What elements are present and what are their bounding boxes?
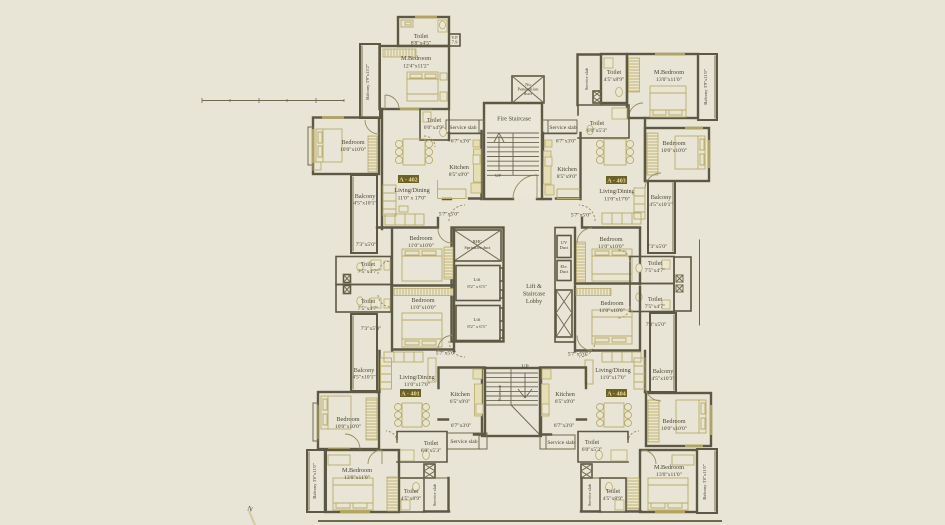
svg-text:Service slab: Service slab bbox=[547, 440, 574, 446]
svg-text:Balcony: Balcony bbox=[355, 193, 377, 200]
svg-text:Lift: Lift bbox=[474, 277, 482, 282]
svg-text:Bedroom: Bedroom bbox=[662, 418, 685, 425]
svg-text:6'7"x3'6": 6'7"x3'6" bbox=[451, 139, 472, 145]
svg-text:11'0"x10'0": 11'0"x10'0" bbox=[598, 244, 624, 250]
svg-text:6'7"x3'0": 6'7"x3'0" bbox=[554, 423, 575, 429]
svg-text:11'0"x10'0": 11'0"x10'0" bbox=[599, 308, 625, 314]
svg-text:Lift &: Lift & bbox=[526, 283, 542, 290]
svg-text:8'2" x 6'3": 8'2" x 6'3" bbox=[467, 284, 486, 289]
svg-text:Service slab: Service slab bbox=[549, 125, 576, 131]
svg-text:Bedroom: Bedroom bbox=[599, 236, 622, 243]
svg-text:Bedroom: Bedroom bbox=[411, 297, 434, 304]
svg-text:7'5"x4'7": 7'5"x4'7" bbox=[645, 304, 666, 310]
svg-text:Toilet: Toilet bbox=[590, 120, 605, 127]
svg-text:Toilet: Toilet bbox=[606, 488, 621, 495]
svg-text:Bedroom: Bedroom bbox=[409, 235, 432, 242]
svg-text:7'5"x4'7": 7'5"x4'7" bbox=[358, 269, 379, 275]
svg-text:11'0" x 17'0": 11'0" x 17'0" bbox=[398, 196, 427, 202]
svg-text:Toilet: Toilet bbox=[607, 69, 622, 76]
svg-text:10'0"x10'0": 10'0"x10'0" bbox=[661, 426, 687, 432]
svg-text:10'0"x10'0": 10'0"x10'0" bbox=[335, 424, 361, 430]
svg-text:Staircase: Staircase bbox=[497, 385, 502, 402]
svg-text:5'7"x5'0": 5'7"x5'0" bbox=[568, 352, 589, 358]
svg-text:Toilet: Toilet bbox=[424, 440, 439, 447]
svg-text:4'5"x10'1": 4'5"x10'1" bbox=[353, 201, 376, 207]
svg-text:Toilet: Toilet bbox=[361, 298, 376, 305]
svg-text:Toilet: Toilet bbox=[585, 439, 600, 446]
svg-text:Toilet: Toilet bbox=[427, 117, 442, 124]
svg-text:8'5"x9'0": 8'5"x9'0" bbox=[557, 174, 578, 180]
svg-text:Balcony: Balcony bbox=[651, 194, 673, 201]
svg-text:13'0"x11'0": 13'0"x11'0" bbox=[656, 77, 682, 83]
svg-text:7'5"x4'7": 7'5"x4'7" bbox=[645, 268, 666, 274]
svg-text:Toilet: Toilet bbox=[361, 261, 376, 268]
svg-text:6'7"x3'0": 6'7"x3'0" bbox=[556, 139, 577, 145]
svg-text:4'5"x10'1": 4'5"x10'1" bbox=[649, 202, 672, 208]
svg-text:6'7"x3'0": 6'7"x3'0" bbox=[451, 423, 472, 429]
svg-text:Lift: Lift bbox=[474, 317, 482, 322]
svg-text:4'5"x8'9": 4'5"x8'9" bbox=[603, 496, 624, 502]
svg-text:Balcony 3'9"x15'2": Balcony 3'9"x15'2" bbox=[365, 64, 370, 100]
svg-text:6'0"x4'9": 6'0"x4'9" bbox=[424, 125, 445, 131]
svg-text:Bedroom: Bedroom bbox=[336, 416, 359, 423]
svg-text:A - 402: A - 402 bbox=[399, 177, 418, 184]
svg-text:11'0"x17'0": 11'0"x17'0" bbox=[604, 197, 630, 203]
svg-text:Kitchen: Kitchen bbox=[450, 391, 470, 398]
svg-text:7'3"x5'0": 7'3"x5'0" bbox=[647, 244, 668, 250]
svg-text:Toilet: Toilet bbox=[414, 33, 429, 40]
svg-text:6'5"x9'0": 6'5"x9'0" bbox=[555, 399, 576, 405]
svg-text:4'5"x10'1": 4'5"x10'1" bbox=[352, 375, 375, 381]
svg-text:duct: duct bbox=[524, 91, 533, 96]
svg-text:M.Bedroom: M.Bedroom bbox=[654, 464, 684, 471]
svg-text:M.Bedroom: M.Bedroom bbox=[401, 55, 431, 62]
svg-text:Balcony 3'0"x11'0": Balcony 3'0"x11'0" bbox=[312, 463, 317, 499]
svg-text:4'5"x8'9": 4'5"x8'9" bbox=[604, 77, 625, 83]
svg-text:Lobby: Lobby bbox=[526, 298, 543, 305]
svg-text:6'0"x5'3": 6'0"x5'3" bbox=[421, 448, 442, 454]
svg-text:Service slab: Service slab bbox=[450, 439, 477, 445]
svg-text:Balcony 3'0"x11'0": Balcony 3'0"x11'0" bbox=[702, 464, 707, 500]
svg-text:M.Bedroom: M.Bedroom bbox=[654, 69, 684, 76]
svg-text:4'5"x8'9": 4'5"x8'9" bbox=[401, 496, 422, 502]
svg-text:Balcony: Balcony bbox=[653, 368, 675, 375]
svg-text:8'5"x9'0": 8'5"x9'0" bbox=[449, 172, 470, 178]
svg-text:Toilet: Toilet bbox=[648, 296, 663, 303]
svg-text:13'0"x11'0": 13'0"x11'0" bbox=[656, 472, 682, 478]
svg-text:Staircase: Staircase bbox=[523, 291, 546, 298]
svg-text:Duct: Duct bbox=[560, 269, 570, 274]
svg-text:7'3"x5'0": 7'3"x5'0" bbox=[646, 322, 667, 328]
svg-text:11'0"x17'0": 11'0"x17'0" bbox=[404, 382, 430, 388]
svg-text:A - 401: A - 401 bbox=[401, 391, 420, 398]
svg-text:M.Bedroom: M.Bedroom bbox=[342, 467, 372, 474]
svg-text:Balcony: Balcony bbox=[354, 367, 376, 374]
svg-text:A - 403: A - 403 bbox=[607, 178, 626, 185]
svg-text:Balcony 3'9"x11'0": Balcony 3'9"x11'0" bbox=[703, 69, 708, 105]
svg-text:11'0"x10'0": 11'0"x10'0" bbox=[408, 243, 434, 249]
svg-text:Kitchen: Kitchen bbox=[555, 391, 575, 398]
svg-text:7'3"x5'0": 7'3"x5'0" bbox=[361, 326, 382, 332]
svg-text:7.9: 7.9 bbox=[452, 40, 458, 45]
svg-text:Duct: Duct bbox=[560, 245, 570, 250]
svg-text:Kitchen: Kitchen bbox=[449, 164, 469, 171]
svg-text:Bedroom: Bedroom bbox=[600, 300, 623, 307]
svg-text:Kitchen: Kitchen bbox=[557, 166, 577, 173]
svg-text:6'0"x5'3": 6'0"x5'3" bbox=[582, 447, 603, 453]
svg-text:12'4"x11'2": 12'4"x11'2" bbox=[403, 64, 429, 70]
svg-text:UP: UP bbox=[521, 364, 528, 370]
svg-text:10'0"x10'0": 10'0"x10'0" bbox=[661, 148, 687, 154]
svg-text:Living/Dining: Living/Dining bbox=[394, 187, 429, 194]
svg-text:8'2" x 6'3": 8'2" x 6'3" bbox=[467, 324, 486, 329]
svg-text:Service slab: Service slab bbox=[449, 125, 476, 131]
svg-text:Service slab: Service slab bbox=[584, 67, 589, 90]
svg-text:Service slab: Service slab bbox=[432, 483, 437, 506]
svg-text:7'3"x5'0": 7'3"x5'0" bbox=[356, 242, 377, 248]
svg-text:Fire Staircase: Fire Staircase bbox=[497, 116, 531, 123]
svg-text:11'0"x17'0": 11'0"x17'0" bbox=[600, 375, 626, 381]
svg-text:7'5"x4'7": 7'5"x4'7" bbox=[358, 306, 379, 312]
svg-text:4'5"x10'3": 4'5"x10'3" bbox=[651, 376, 674, 382]
svg-text:Sprinkler duct: Sprinkler duct bbox=[464, 245, 491, 250]
svg-text:11'0"x10'0": 11'0"x10'0" bbox=[410, 305, 436, 311]
svg-text:Toilet: Toilet bbox=[648, 260, 663, 267]
svg-text:5'7"x5'0": 5'7"x5'0" bbox=[439, 212, 460, 218]
svg-text:Toilet: Toilet bbox=[404, 488, 419, 495]
svg-text:6'5"x9'0": 6'5"x9'0" bbox=[450, 399, 471, 405]
svg-text:Living/Dining: Living/Dining bbox=[399, 374, 434, 381]
svg-text:Bedroom: Bedroom bbox=[662, 140, 685, 147]
svg-text:A - 404: A - 404 bbox=[607, 391, 626, 398]
svg-text:6'0"x5'3": 6'0"x5'3" bbox=[587, 128, 608, 134]
svg-text:Bedroom: Bedroom bbox=[341, 139, 364, 146]
svg-text:Living/Dining: Living/Dining bbox=[595, 367, 630, 374]
svg-text:UP: UP bbox=[495, 173, 501, 178]
svg-text:10'0"x10'0": 10'0"x10'0" bbox=[340, 147, 366, 153]
svg-text:Service slab: Service slab bbox=[587, 483, 592, 506]
svg-text:RHC: RHC bbox=[473, 239, 482, 244]
svg-text:Living/Dining: Living/Dining bbox=[599, 188, 634, 195]
svg-text:13'0"x11'0": 13'0"x11'0" bbox=[344, 475, 370, 481]
